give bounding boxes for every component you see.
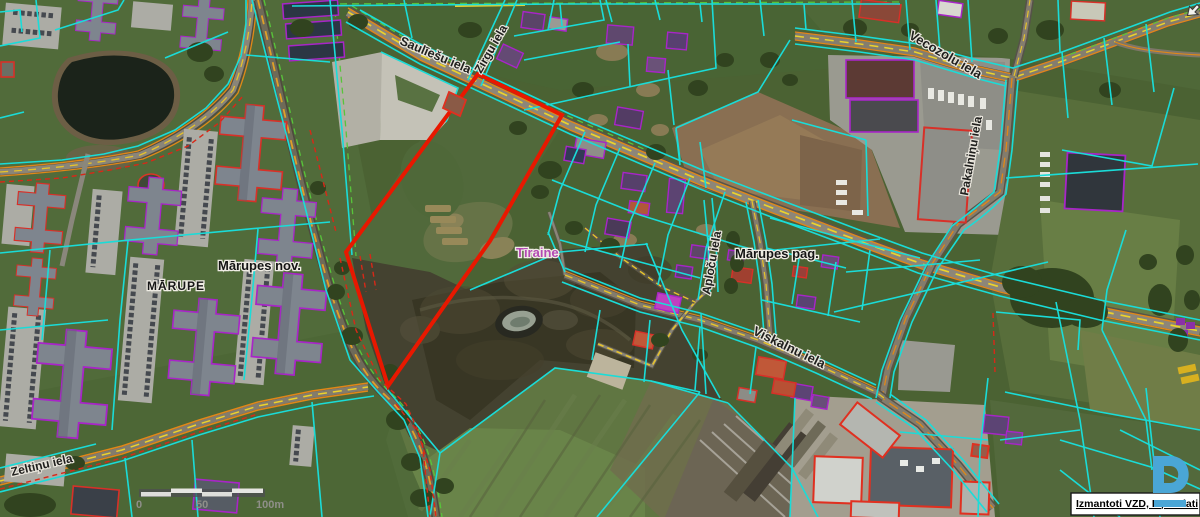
svg-text:MĀRUPE: MĀRUPE: [147, 279, 205, 293]
svg-text:100m: 100m: [256, 499, 284, 511]
svg-text:0: 0: [136, 499, 142, 511]
svg-text:Tīraine: Tīraine: [516, 245, 559, 260]
svg-text:Mārupes nov.: Mārupes nov.: [218, 258, 301, 273]
svg-text:50: 50: [196, 499, 208, 511]
svg-text:Mārupes pag.: Mārupes pag.: [735, 246, 819, 261]
